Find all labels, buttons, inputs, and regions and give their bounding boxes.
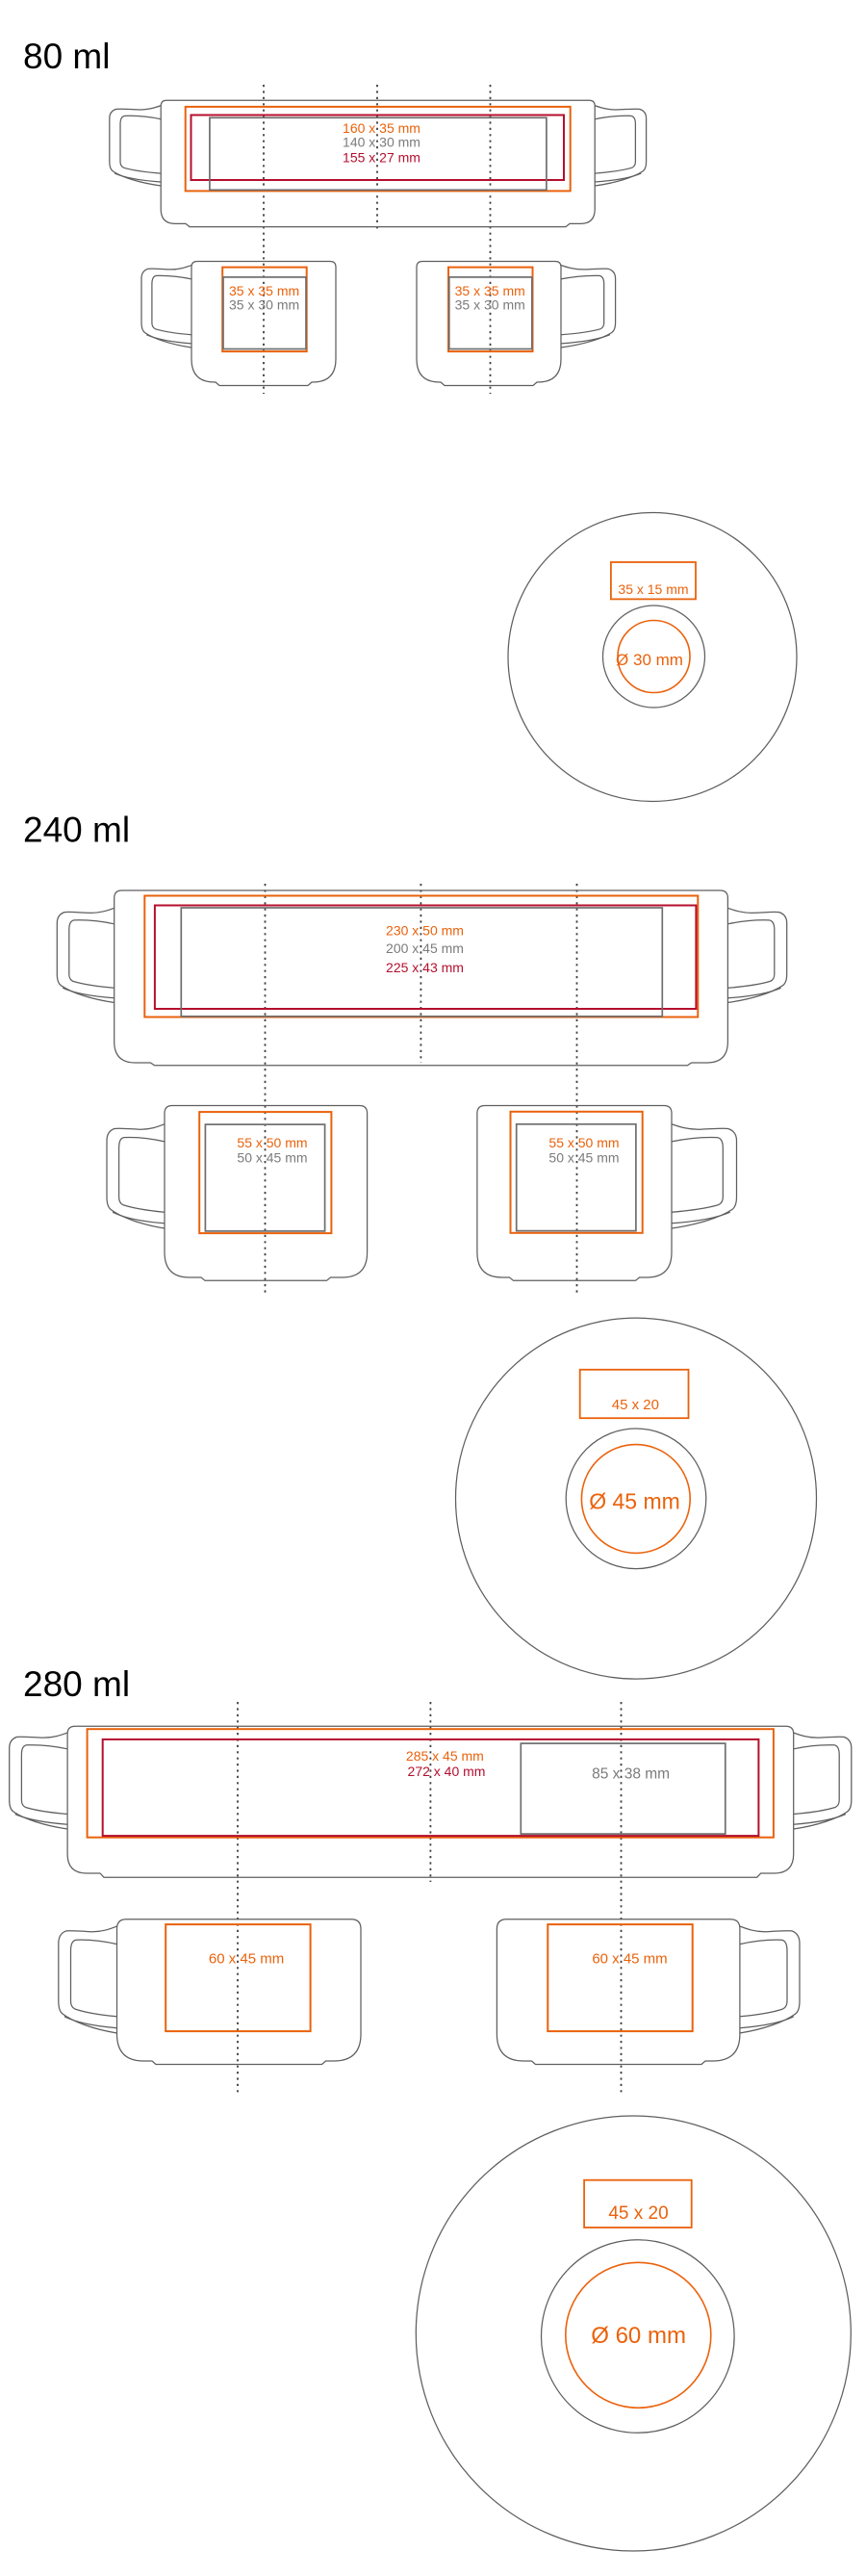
svg-text:Ø 45 mm: Ø 45 mm bbox=[589, 1488, 680, 1513]
svg-text:225 x 43 mm: 225 x 43 mm bbox=[386, 960, 464, 975]
svg-text:55 x 50 mm: 55 x 50 mm bbox=[237, 1135, 307, 1150]
svg-text:50 x 45 mm: 50 x 45 mm bbox=[237, 1150, 307, 1166]
svg-text:155 x 27 mm: 155 x 27 mm bbox=[343, 149, 420, 165]
svg-text:35 x 15 mm: 35 x 15 mm bbox=[618, 581, 688, 597]
svg-text:80 ml: 80 ml bbox=[23, 37, 110, 76]
svg-text:85 x 38 mm: 85 x 38 mm bbox=[592, 1766, 670, 1783]
svg-text:55 x 50 mm: 55 x 50 mm bbox=[548, 1135, 619, 1150]
svg-text:60 x 45 mm: 60 x 45 mm bbox=[592, 1951, 667, 1968]
svg-text:272 x 40 mm: 272 x 40 mm bbox=[408, 1764, 486, 1779]
svg-text:35 x 30 mm: 35 x 30 mm bbox=[229, 296, 299, 312]
svg-text:285 x 45 mm: 285 x 45 mm bbox=[406, 1748, 484, 1764]
svg-text:35 x 30 mm: 35 x 30 mm bbox=[455, 296, 525, 312]
svg-text:140 x 30 mm: 140 x 30 mm bbox=[343, 134, 420, 149]
svg-text:45 x 20: 45 x 20 bbox=[612, 1397, 659, 1413]
svg-text:Ø 60 mm: Ø 60 mm bbox=[591, 2323, 686, 2349]
svg-text:280 ml: 280 ml bbox=[23, 1664, 130, 1704]
svg-text:200 x 45 mm: 200 x 45 mm bbox=[386, 940, 464, 956]
svg-text:50 x 45 mm: 50 x 45 mm bbox=[548, 1150, 619, 1166]
svg-text:230 x 50 mm: 230 x 50 mm bbox=[386, 923, 464, 939]
svg-text:240 ml: 240 ml bbox=[23, 811, 130, 850]
svg-text:45 x 20: 45 x 20 bbox=[608, 2203, 668, 2224]
svg-text:Ø 30 mm: Ø 30 mm bbox=[616, 651, 683, 669]
svg-text:60 x 45 mm: 60 x 45 mm bbox=[209, 1951, 284, 1968]
